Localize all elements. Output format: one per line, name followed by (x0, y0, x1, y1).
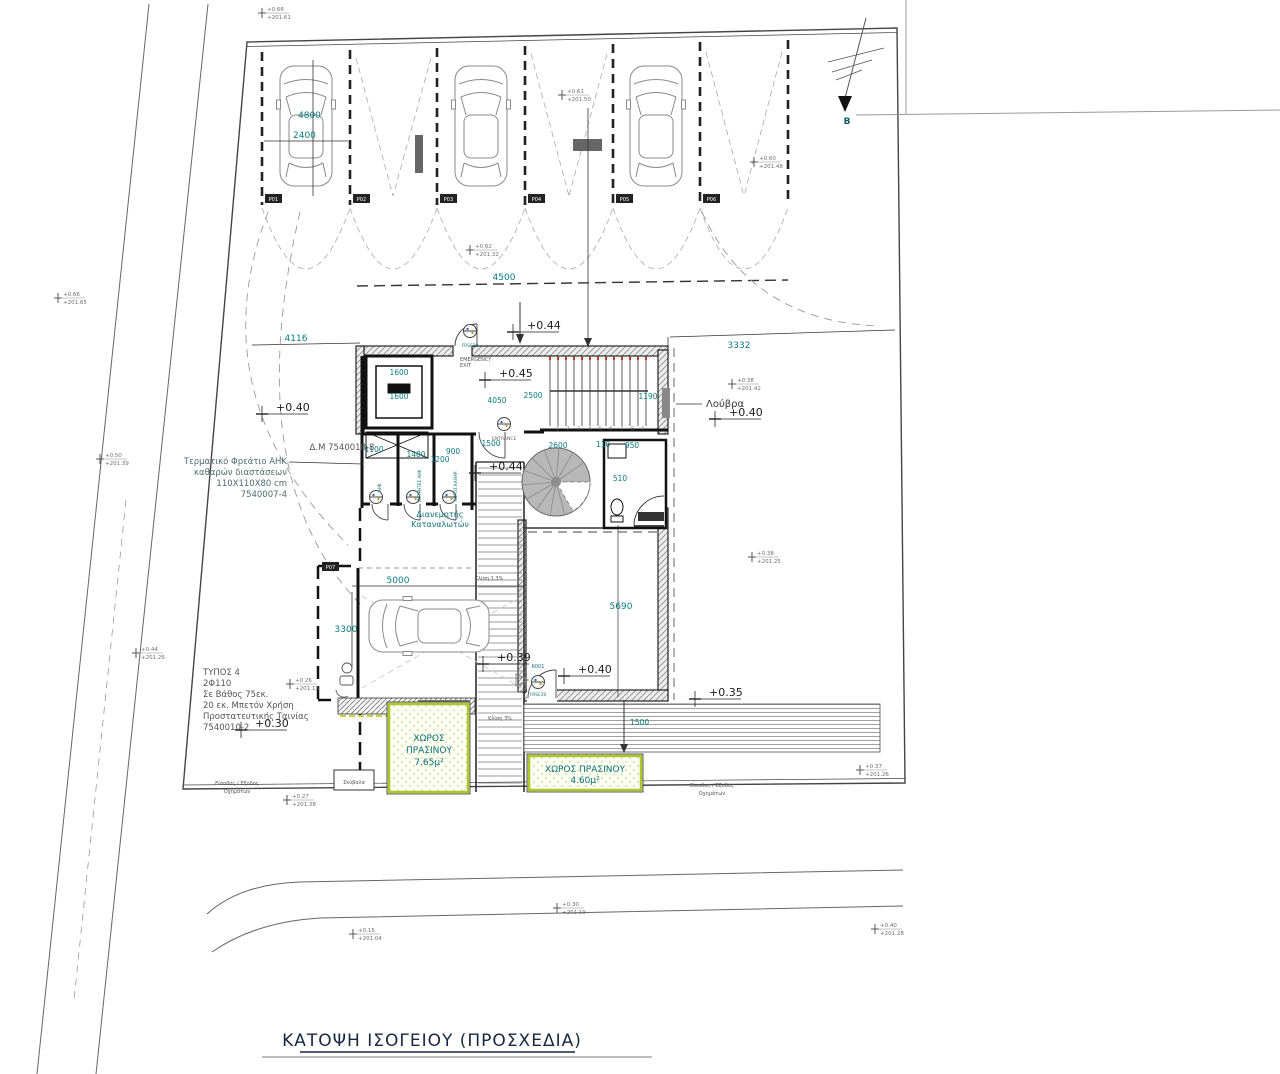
spot-11-datum: +201.38 (292, 802, 316, 808)
label-vehicle-entry-right: Είσοδος / ΈξοδοςΟχημάτων (690, 782, 734, 797)
dim-110: 110 (596, 440, 611, 449)
parking-layer (246, 40, 895, 606)
dim-5690: 5690 (610, 602, 633, 612)
spot-8-value: +0.38 (737, 378, 754, 384)
label-room-metrites: ΜΕΤΡΗΤΕΣ ΑΗΚ (417, 470, 422, 503)
spot-11: +0.27+201.38 (283, 794, 316, 808)
spot-3-datum: +201.39 (105, 461, 129, 467)
spot-13-value: +0.30 (562, 902, 579, 908)
spot-1: +0.66+201.61 (258, 7, 291, 21)
dim-1200: 1200 (430, 455, 449, 464)
spot-10-value: +0.26 (295, 678, 312, 684)
label-klisi-13: Κλίση 1.3% (475, 575, 504, 582)
level-035-ramp-value: +0.35 (709, 686, 743, 699)
wall-stub-1 (415, 135, 423, 173)
accessible-wc-symbol (336, 663, 353, 697)
spot-8-datum: +201.42 (737, 386, 761, 392)
floor-plan-page: P01P02P03P04P05P06P07 480024004500411633… (0, 0, 1280, 1074)
spot-2-value: +0.66 (63, 292, 80, 298)
parking-tag-P02: P02 (353, 194, 370, 203)
spot-13-datum: +201.19 (562, 910, 586, 916)
label-frsc-entry: FRSC30 (462, 343, 479, 348)
dim-4800: 4800 (298, 111, 321, 121)
spot-1-value: +0.66 (267, 7, 284, 13)
spot-12-datum: +201.26 (865, 772, 889, 778)
parked-car-1 (277, 66, 336, 186)
label-klisi-3: Κλίση 3% (488, 715, 512, 722)
spot-7: +0.62+201.32 (466, 244, 499, 258)
label-frsc-k001: FRSC30 (530, 692, 547, 697)
dim-1190: 1190 (638, 392, 657, 401)
spot-4: +0.44+201.26 (132, 647, 165, 661)
level-marks-layer: +0.44+0.45+0.44+0.40+0.40+0.40+0.39+0.30… (235, 319, 763, 738)
level-044-corridor-value: +0.44 (489, 460, 523, 473)
label-room-katharismou: ΧΩΡΟΣ ΚΑΘΑΡ. (453, 470, 458, 502)
label-skybala: Σκύβαλα (343, 779, 365, 786)
spot-15-value: +0.40 (880, 923, 897, 929)
parking-tag-P05: P05 (616, 194, 633, 203)
spot-10-datum: +201.13 (295, 686, 319, 692)
level-040-left-value: +0.40 (276, 401, 310, 414)
note-ahk: Τερματικό Φρεάτιο ΑΗΚκαθαρών διαστάσεων1… (183, 456, 287, 500)
spot-15: +0.40+201.28 (871, 923, 904, 937)
floor-plan-drawing: P01P02P03P04P05P06P07 480024004500411633… (0, 0, 1280, 1074)
spot-7-value: +0.62 (475, 244, 492, 250)
door-tag-icon (498, 418, 511, 431)
label-emergency-exit: EMERGENCYEXIT (460, 357, 492, 369)
spot-13: +0.30+201.19 (553, 902, 586, 916)
louver-symbol (662, 388, 670, 418)
dim-4050: 4050 (487, 396, 506, 405)
dim-1600-a: 1600 (389, 368, 408, 377)
parking-tag-P01: P01 (265, 194, 282, 203)
parking-tag-P04: P04 (528, 194, 545, 203)
dim-3332: 3332 (728, 341, 751, 351)
spot-8: +0.38+201.42 (728, 378, 761, 392)
label-dm-note: Δ.Μ 7540018-8 (310, 443, 375, 453)
spot-7-datum: +201.32 (475, 252, 499, 258)
dim-2500: 2500 (523, 391, 542, 400)
spot-14: +0.15+201.04 (349, 928, 382, 942)
spot-6-datum: +201.48 (759, 164, 783, 170)
level-039-garage-value: +0.39 (497, 651, 531, 664)
label-entrance: ENTRANCE (492, 436, 516, 442)
spot-6: +0.60+201.48 (750, 156, 783, 170)
spot-4-datum: +201.26 (141, 655, 165, 661)
spot-3-value: +0.50 (105, 453, 122, 459)
parking-tag-label: P01 (269, 197, 278, 203)
dim-510: 510 (613, 474, 628, 483)
label-room-ahk: ΑΗΚ (377, 483, 382, 492)
spot-9-datum: +201.25 (757, 559, 781, 565)
spot-4-value: +0.44 (141, 647, 158, 653)
garage-car (369, 597, 489, 656)
dim-1600-b: 1600 (389, 392, 408, 401)
parking-tag-label: P02 (357, 197, 366, 203)
north-label: Β (844, 117, 851, 127)
dim-1500-green: 1500 (630, 718, 649, 727)
drawing-title: ΚΑΤΟΨΗ ΙΣΟΓΕΙΟΥ (ΠΡΟΣΧΕΔΙΑ) (282, 1031, 582, 1051)
wall-stub-2 (573, 139, 602, 151)
spot-11-value: +0.27 (292, 794, 309, 800)
dim-4116: 4116 (285, 334, 308, 344)
level-045-hall: +0.45 (479, 367, 533, 388)
spiral-staircase (522, 448, 590, 516)
vehicle-ramp (524, 704, 880, 752)
level-044-top: +0.44 (507, 319, 561, 340)
label-stair-numbers: 1 2 3 4 5 6 7 8 9 (556, 426, 648, 432)
parking-tag-label: P05 (620, 197, 629, 203)
dim-2400: 2400 (293, 131, 316, 141)
wc-room (604, 440, 666, 528)
spot-14-datum: +201.04 (358, 936, 382, 942)
dim-2600: 2600 (548, 441, 567, 450)
spot-5: +0.61+201.50 (558, 89, 591, 103)
level-044-top-value: +0.44 (527, 319, 561, 332)
spot-2-datum: +201.65 (63, 300, 87, 306)
spot-14-value: +0.15 (358, 928, 375, 934)
dim-4500: 4500 (493, 273, 516, 283)
parked-car-2 (452, 66, 511, 186)
parking-tag-P06: P06 (703, 194, 720, 203)
label-door-k001: K001 (532, 664, 545, 670)
dim-1400: 1400 (406, 450, 425, 459)
level-040-right-value: +0.40 (729, 406, 763, 419)
spot-9: +0.38+201.25 (748, 551, 781, 565)
main-staircase (549, 356, 648, 426)
level-040-room: +0.40 (558, 663, 612, 684)
label-vehicle-entry-left: Είσοδος / ΈξοδοςΟχημάτων (215, 780, 259, 795)
level-040-left: +0.40 (256, 401, 310, 422)
spot-1-datum: +201.61 (267, 15, 291, 21)
level-045-hall-value: +0.45 (499, 367, 533, 380)
spot-2: +0.66+201.65 (54, 292, 87, 306)
building-layer (289, 302, 880, 794)
door-tag-icon (532, 676, 545, 689)
parking-tag-label: P04 (532, 197, 541, 203)
spot-5-value: +0.61 (567, 89, 584, 95)
parking-tag-label: P06 (707, 197, 716, 203)
door-tag-icon (464, 325, 477, 338)
level-030-yard-value: +0.30 (255, 717, 289, 730)
dim-5000: 5000 (387, 576, 410, 586)
spot-12: +0.37+201.26 (856, 764, 889, 778)
spot-10: +0.26+201.13 (286, 678, 319, 692)
north-arrow (828, 18, 884, 112)
dim-3300: 3300 (335, 625, 358, 635)
parking-tag-label: P07 (326, 565, 335, 571)
parked-car-3 (627, 66, 686, 186)
dim-950: 950 (625, 441, 640, 450)
label-dianemitis: ΔιανεμητήςΚαταναλωτών (411, 510, 469, 529)
parking-tag-P07: P07 (322, 562, 339, 571)
level-040-room-value: +0.40 (578, 663, 612, 676)
spot-9-value: +0.38 (757, 551, 774, 557)
level-044-corridor: +0.44 (469, 460, 523, 481)
spot-12-value: +0.37 (865, 764, 882, 770)
spot-15-datum: +201.28 (880, 931, 904, 937)
parking-tag-label: P03 (444, 197, 453, 203)
spot-6-value: +0.60 (759, 156, 776, 162)
spot-5-datum: +201.50 (567, 97, 591, 103)
parking-tag-P03: P03 (440, 194, 457, 203)
